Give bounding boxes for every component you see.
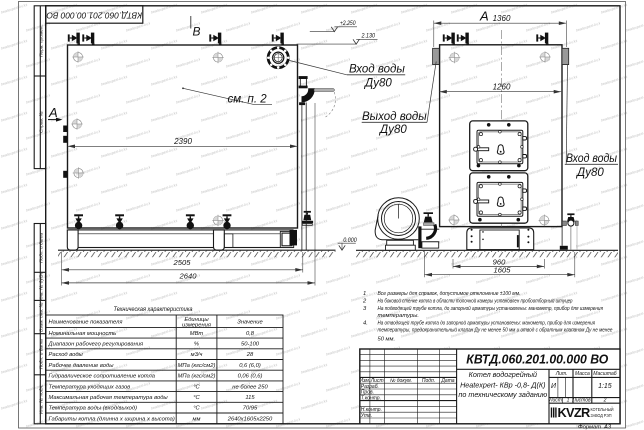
svg-text:Масштаб: Масштаб (593, 371, 617, 377)
svg-text:70/95: 70/95 (243, 406, 258, 412)
svg-text:2640: 2640 (179, 272, 198, 281)
svg-text:2.130: 2.130 (361, 33, 376, 40)
svg-text:№ докум.: № докум. (390, 378, 412, 384)
svg-text:°С: °С (193, 395, 200, 401)
svg-text:0,8: 0,8 (246, 331, 255, 337)
svg-text:Номинальная мощность: Номинальная мощность (49, 331, 117, 337)
svg-text:Котел водогрейный: Котел водогрейный (469, 370, 537, 379)
svg-text:мм: мм (193, 416, 201, 422)
svg-text:Рабочее давление воды: Рабочее давление воды (49, 363, 115, 369)
svg-text:50-100: 50-100 (241, 342, 260, 348)
svg-text:Лист: Лист (548, 398, 562, 404)
svg-text:Габариты котла (длинна х ширин: Габариты котла (длинна х ширина х высота… (49, 416, 175, 422)
svg-text:1:15: 1:15 (598, 383, 612, 390)
svg-text:Формат: Формат (578, 425, 601, 430)
svg-text:2: 2 (603, 398, 607, 404)
svg-text:На подводящей трубе котла, д: На подводящей трубе котла, до запорной а… (378, 305, 604, 312)
svg-text:115: 115 (245, 395, 255, 401)
svg-text:1360: 1360 (493, 14, 511, 23)
svg-text:Диапазон рабочего регулировани: Диапазон рабочего регулирования (48, 342, 144, 348)
svg-text:Техническая характеристика: Техническая характеристика (114, 306, 193, 313)
svg-text:ЗАВОД РЭП: ЗАВОД РЭП (591, 413, 612, 418)
svg-text:МВт: МВт (190, 331, 204, 337)
svg-text:%: % (194, 342, 199, 348)
svg-text:А3: А3 (603, 425, 612, 430)
svg-text:Т.контр.: Т.контр. (361, 396, 381, 402)
svg-text:Все размеры для справок, допус: Все размеры для справок, допустимое откл… (378, 291, 521, 297)
svg-text:Взам. инв. №: Взам. инв. № (39, 302, 45, 332)
svg-text:Гидравлическое сопротивление к: Гидравлическое сопротивление котла (49, 374, 156, 380)
svg-text:Утв.: Утв. (361, 413, 372, 419)
svg-text:не более 250: не более 250 (232, 384, 268, 390)
svg-text:измерения: измерения (182, 323, 211, 329)
svg-text:Наименование показателя: Наименование показателя (49, 319, 123, 325)
svg-text:Температура воды (вход/выход): Температура воды (вход/выход) (49, 406, 138, 412)
svg-text:1260: 1260 (493, 83, 511, 92)
svg-text:КВТД.060.201.00.000 ВО: КВТД.060.201.00.000 ВО (46, 10, 142, 20)
svg-text:м3/ч: м3/ч (191, 352, 203, 358)
svg-text:Значение: Значение (237, 319, 263, 325)
svg-text:KVZR: KVZR (558, 405, 590, 420)
svg-text:Лист: Лист (370, 378, 384, 384)
svg-text:28: 28 (246, 352, 254, 358)
svg-text:Максимальная рабочая температу: Максимальная рабочая температура воды (49, 395, 169, 401)
svg-text:Перв. примен.: Перв. примен. (39, 25, 45, 57)
svg-text:МПа (кгс/см2): МПа (кгс/см2) (178, 363, 216, 369)
svg-text:Инв. № дубл.: Инв. № дубл. (39, 272, 45, 302)
svg-text:1605: 1605 (494, 266, 512, 275)
svg-text:°С: °С (193, 384, 200, 390)
svg-text:КОТЕЛЬНЫЙ: КОТЕЛЬНЫЙ (591, 405, 614, 412)
svg-text:по техническому заданию: по техническому заданию (458, 390, 547, 399)
svg-text:Ду80: Ду80 (378, 124, 407, 136)
svg-text:Температура уходящих газов: Температура уходящих газов (49, 384, 131, 390)
svg-text:Инв. № подл.: Инв. № подл. (39, 384, 45, 414)
svg-text:Изм.: Изм. (360, 378, 371, 384)
svg-text:Вход воды: Вход воды (349, 64, 405, 76)
svg-text:0,06 (0,6): 0,06 (0,6) (238, 374, 263, 380)
svg-text:Подп. и дата: Подп. и дата (39, 339, 45, 369)
svg-text:Дата: Дата (440, 378, 454, 384)
svg-text:температуры.: температуры. (378, 313, 420, 319)
svg-text:Справ. №: Справ. № (39, 111, 45, 133)
svg-text:температуры, предохранительный: температуры, предохранительный клапан Ду… (378, 327, 614, 334)
svg-text:Ду80: Ду80 (363, 78, 392, 90)
svg-text:Выход воды: Выход воды (362, 111, 427, 123)
svg-text:0,6 (6,0): 0,6 (6,0) (239, 363, 261, 369)
svg-text:Подп.: Подп. (422, 378, 435, 384)
svg-text:4.: 4. (363, 320, 368, 326)
svg-text:2640х1605х2250: 2640х1605х2250 (227, 416, 273, 422)
svg-text:На отводящей трубе котла до за: На отводящей трубе котла до запорной арм… (378, 319, 596, 326)
svg-text:КВТД.060.201.00.000 ВО: КВТД.060.201.00.000 ВО (466, 352, 608, 367)
svg-text:2390: 2390 (173, 137, 192, 146)
svg-text:Расход воды: Расход воды (49, 352, 84, 358)
svg-text:1: 1 (363, 291, 366, 297)
svg-text:Листов: Листов (571, 398, 591, 404)
svg-text:Ду80: Ду80 (575, 167, 604, 179)
svg-text:МПа (кгс/см2): МПа (кгс/см2) (178, 374, 216, 380)
svg-text:Лит.: Лит. (555, 371, 568, 377)
svg-text:Вход воды: Вход воды (566, 153, 617, 165)
svg-text:1: 1 (567, 398, 570, 404)
svg-text:°С: °С (193, 406, 200, 412)
svg-text:0.000: 0.000 (343, 237, 357, 244)
svg-text:2505: 2505 (173, 258, 192, 267)
svg-text:В: В (193, 25, 201, 39)
svg-text:Подп. и дата: Подп. и дата (39, 233, 45, 263)
svg-text:А: А (479, 9, 489, 24)
svg-text:Масса: Масса (575, 371, 590, 377)
svg-text:Heatexpert- КВр -0,8- Д(К): Heatexpert- КВр -0,8- Д(К) (460, 380, 545, 389)
svg-text:см. п. 2: см. п. 2 (228, 93, 268, 105)
svg-text:50 мм.: 50 мм. (378, 337, 396, 343)
svg-text:+2.250: +2.250 (340, 20, 356, 27)
svg-text:На боковой стенке котла в обла: На боковой стенке котла в области топочн… (378, 298, 574, 305)
